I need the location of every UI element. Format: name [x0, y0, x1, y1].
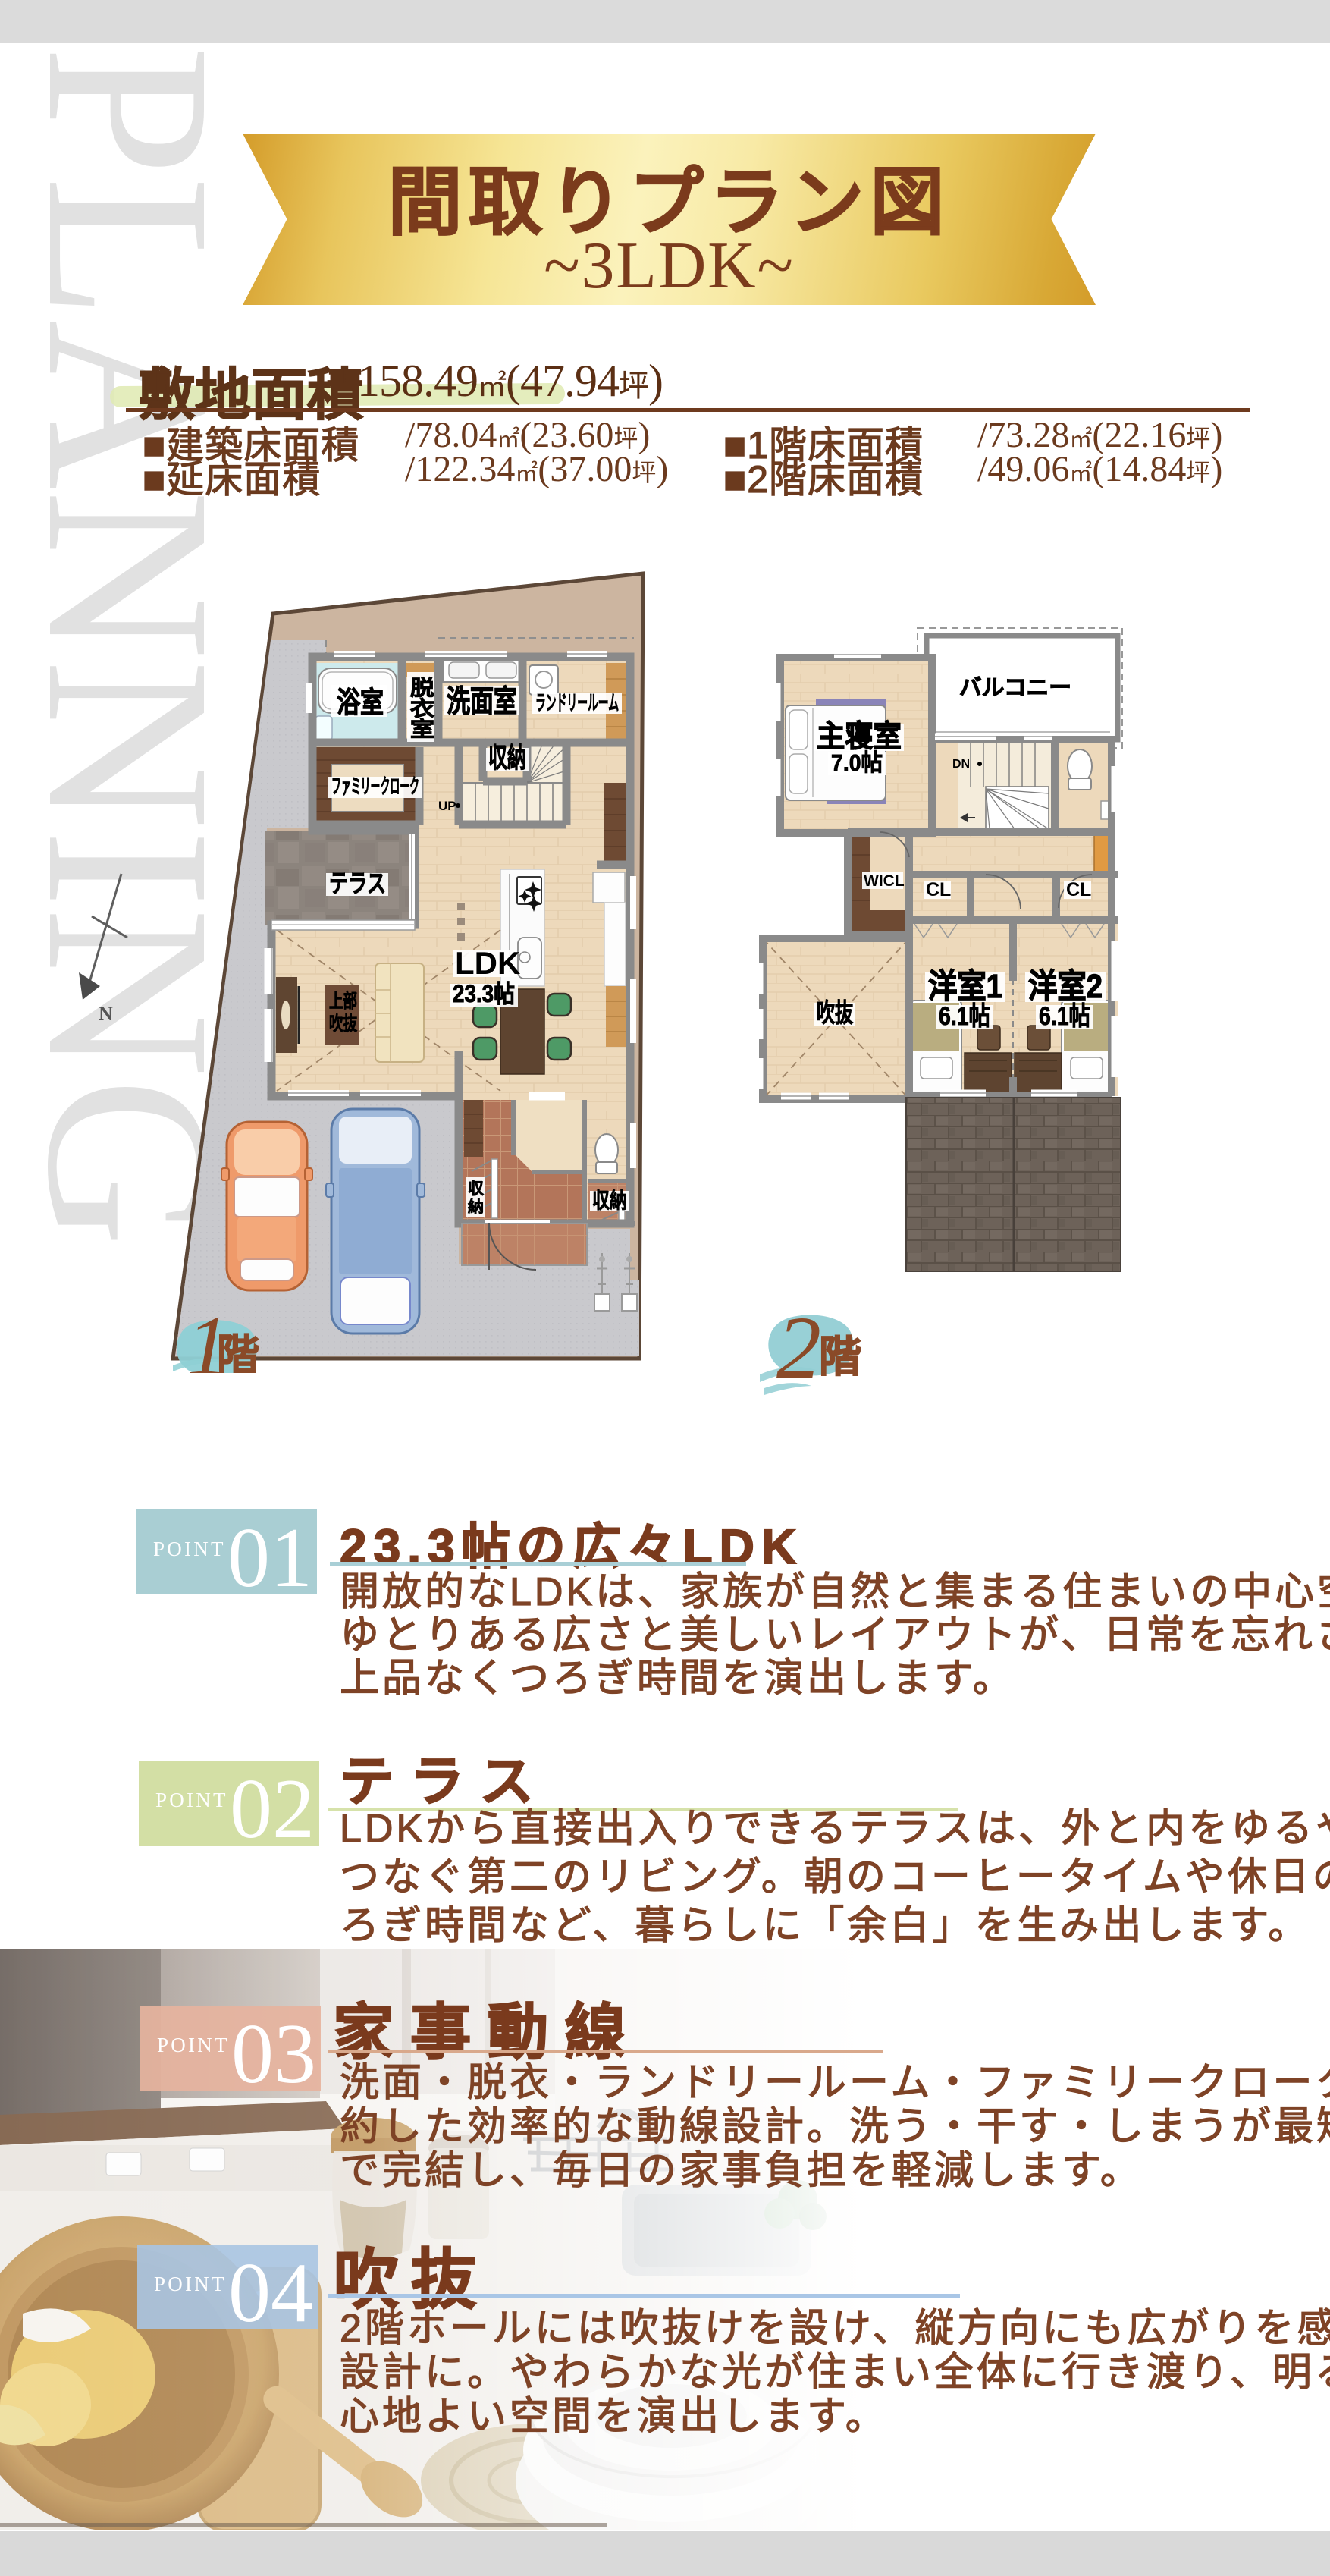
svg-text:ファミリークローク: ファミリークローク: [331, 775, 419, 798]
svg-text:WICL: WICL: [864, 872, 905, 890]
svg-text:収: 収: [468, 1180, 485, 1198]
svg-text:吹抜: 吹抜: [329, 1013, 358, 1035]
svg-text:N: N: [99, 1003, 113, 1025]
svg-text:収納: 収納: [592, 1188, 627, 1212]
svg-text:納: 納: [468, 1198, 484, 1216]
svg-text:バルコニー: バルコニー: [959, 676, 1071, 700]
svg-text:LDK: LDK: [455, 945, 520, 981]
svg-text:DN: DN: [952, 758, 970, 771]
svg-text:2: 2: [776, 1298, 821, 1396]
svg-text:CL: CL: [1066, 879, 1091, 900]
svg-text:吹抜: 吹抜: [817, 999, 853, 1028]
svg-text:洋室1: 洋室1: [928, 967, 1002, 1005]
svg-text:UP: UP: [438, 799, 456, 813]
svg-text:洋室2: 洋室2: [1028, 967, 1103, 1005]
svg-text:主寝室: 主寝室: [817, 719, 902, 753]
svg-text:階: 階: [217, 1331, 259, 1373]
svg-text:洗面室: 洗面室: [447, 685, 517, 718]
svg-text:ランドリールーム: ランドリールーム: [535, 692, 619, 715]
svg-text:浴室: 浴室: [337, 686, 384, 719]
svg-text:収納: 収納: [488, 742, 526, 773]
svg-text:階: 階: [819, 1333, 861, 1381]
svg-text:23.3帖: 23.3帖: [453, 980, 515, 1007]
svg-text:CL: CL: [926, 879, 951, 900]
svg-text:7.0帖: 7.0帖: [831, 749, 883, 776]
svg-text:上部: 上部: [329, 990, 357, 1012]
svg-text:テラス: テラス: [329, 869, 386, 897]
svg-text:6.1帖: 6.1帖: [939, 1002, 990, 1031]
svg-text:脱衣室: 脱衣室: [407, 677, 434, 739]
svg-text:6.1帖: 6.1帖: [1039, 1002, 1090, 1031]
